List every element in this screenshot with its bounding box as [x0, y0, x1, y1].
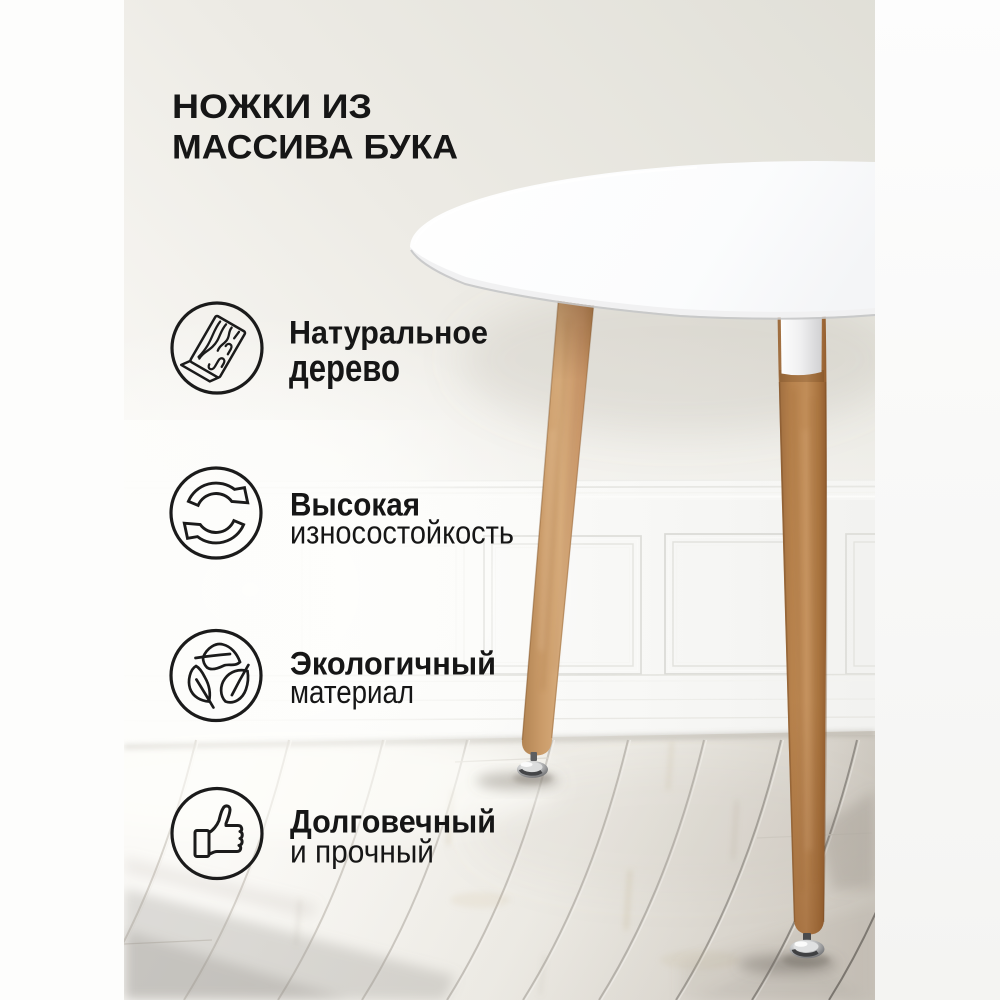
svg-text:материал: материал: [290, 674, 414, 710]
svg-text:дерево: дерево: [289, 348, 400, 390]
svg-text:МАССИВА БУКА: МАССИВА БУКА: [172, 129, 458, 167]
svg-text:НОЖКИ ИЗ: НОЖКИ ИЗ: [172, 88, 372, 126]
svg-text:Натуральное: Натуральное: [289, 315, 488, 351]
svg-text:износостойкость: износостойкость: [290, 515, 514, 551]
svg-text:и прочный: и прочный: [290, 834, 434, 870]
